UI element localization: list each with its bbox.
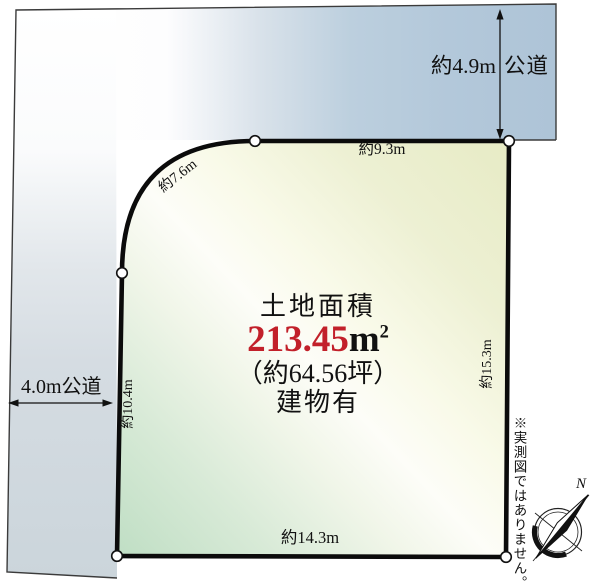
plot-drawing	[0, 0, 600, 582]
left-road-label: 4.0m公道	[21, 377, 102, 397]
building-status: 建物有	[276, 390, 360, 416]
dimension-top-label: 約9.3m	[350, 142, 414, 158]
area-value-unit-sup: 2	[380, 323, 389, 343]
area-value-unit: m	[349, 319, 380, 360]
land-plot-diagram: 約4.9m 公道 約9.3m 約7.6m 約10.4m 約15.3m 約14.3…	[0, 0, 600, 582]
vertex-marker	[504, 136, 515, 147]
dimension-right-label: 約15.3m	[481, 331, 495, 397]
area-value-number: 213.45	[247, 319, 349, 360]
vertex-marker	[250, 136, 261, 147]
vertex-marker	[117, 268, 128, 279]
disclaimer-note: ※実測図ではありません。	[512, 416, 526, 582]
dimension-left-label: 約10.4m	[122, 371, 136, 437]
top-road-width-label: 約4.9m	[428, 56, 496, 78]
area-tsubo: （約64.56坪）	[237, 361, 400, 387]
compass-north-label: N	[576, 477, 586, 492]
compass-needle-light-half	[536, 495, 588, 558]
top-road-type-label: 公道	[504, 56, 549, 78]
compass-rose	[533, 495, 589, 561]
area-value-line: 213.45m2	[247, 321, 389, 358]
left-road-area	[7, 9, 117, 578]
area-title: 土地面積	[260, 294, 376, 320]
vertex-marker	[501, 552, 512, 563]
vertex-marker	[112, 551, 123, 562]
dimension-bottom-label: 約14.3m	[270, 530, 350, 547]
